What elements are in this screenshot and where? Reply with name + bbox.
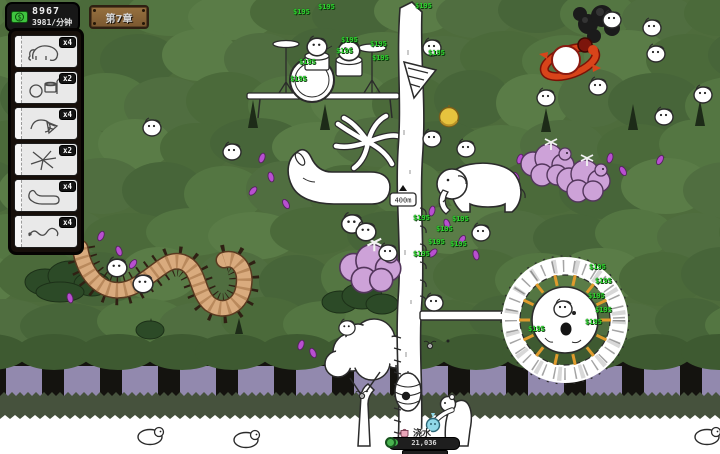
cymbal [273,41,299,48]
elephant-doodle [23,38,63,64]
snake-doodle [23,218,63,244]
money-rate: 3981/分钟 [32,17,72,28]
ghost-rider[interactable] [107,257,127,277]
height-sign-text: 400m [395,197,412,205]
card-count: x2 [59,145,76,156]
chapter-badge[interactable]: 第7章 [89,5,149,29]
watering-progress-bar: 21,036 [388,437,460,450]
item-panel: x4 x2 x4 x2 x4 x4 [8,28,84,255]
fly-speck [447,340,450,343]
tower-branch [420,311,508,320]
splat-doodle [23,146,63,172]
cymbal [358,44,386,52]
svg-text:$: $ [17,14,21,22]
drummer-creature[interactable] [307,36,327,56]
card-drum-kit[interactable]: x2 [14,71,78,104]
drummer-creature[interactable] [338,39,360,61]
card-count: x4 [59,37,76,48]
sock-doodle [23,182,63,208]
money-bill-icon: $ [11,11,28,23]
chapter-label: 第7章 [106,10,133,25]
card-count: x4 [59,217,76,228]
progress-value: 21,036 [389,439,459,447]
money-amount: 8967 [32,6,72,17]
card-count: x4 [59,181,76,192]
drill-doodle [23,110,63,136]
card-elephant[interactable]: x4 [14,35,78,68]
card-drill-creature[interactable]: x4 [14,107,78,140]
card-sock-creature[interactable]: x4 [14,179,78,212]
game-scene: 400m [0,0,720,454]
secondary-bar [402,450,448,454]
drum-doodle [23,74,63,100]
card-count: x2 [59,73,76,84]
game-viewport: 400m [0,0,720,454]
card-count: x4 [59,109,76,120]
ghost-rider[interactable] [133,273,153,293]
card-splat-creature[interactable]: x2 [14,143,78,176]
card-snake-creature[interactable]: x4 [14,215,78,248]
